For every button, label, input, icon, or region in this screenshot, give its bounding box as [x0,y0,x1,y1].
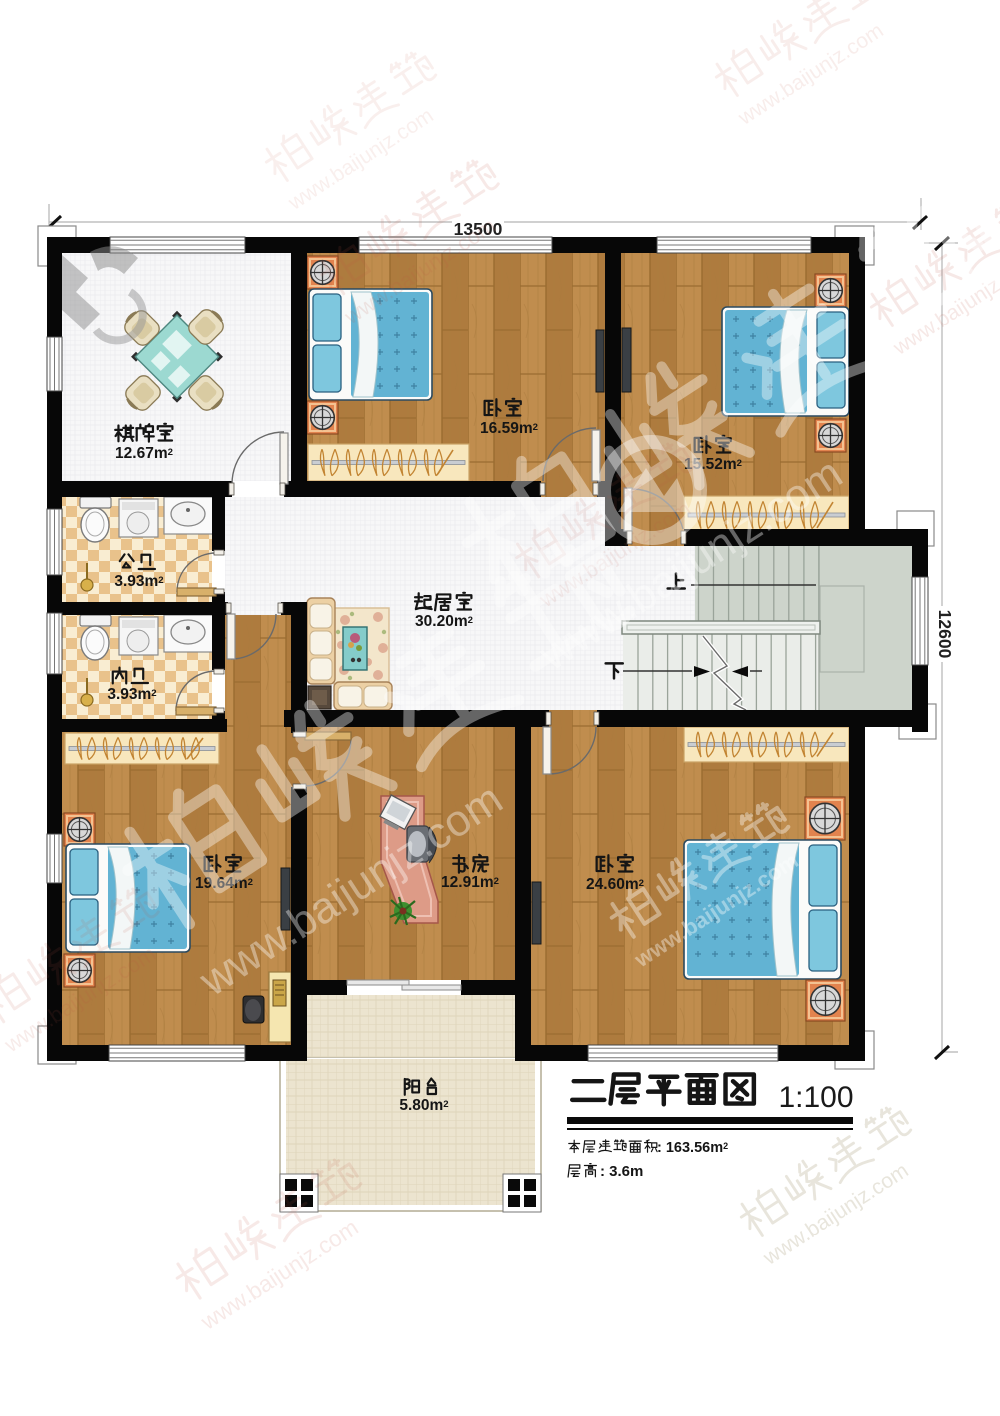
svg-text:3.93m2: 3.93m2 [107,686,156,703]
svg-text:24.60m2: 24.60m2 [586,876,644,893]
svg-text:: 3.6m: : 3.6m [600,1163,643,1180]
svg-text:5.80m2: 5.80m2 [399,1097,448,1114]
svg-text:12600: 12600 [935,610,955,659]
svg-text:: 163.56m2: : 163.56m2 [657,1140,728,1156]
svg-text:16.59m2: 16.59m2 [480,420,538,437]
svg-text:3.93m2: 3.93m2 [114,573,163,590]
svg-text:30.20m2: 30.20m2 [415,613,473,630]
svg-text:12.67m2: 12.67m2 [115,445,173,462]
svg-text:12.91m2: 12.91m2 [441,874,499,891]
svg-text:1:100: 1:100 [778,1081,853,1114]
